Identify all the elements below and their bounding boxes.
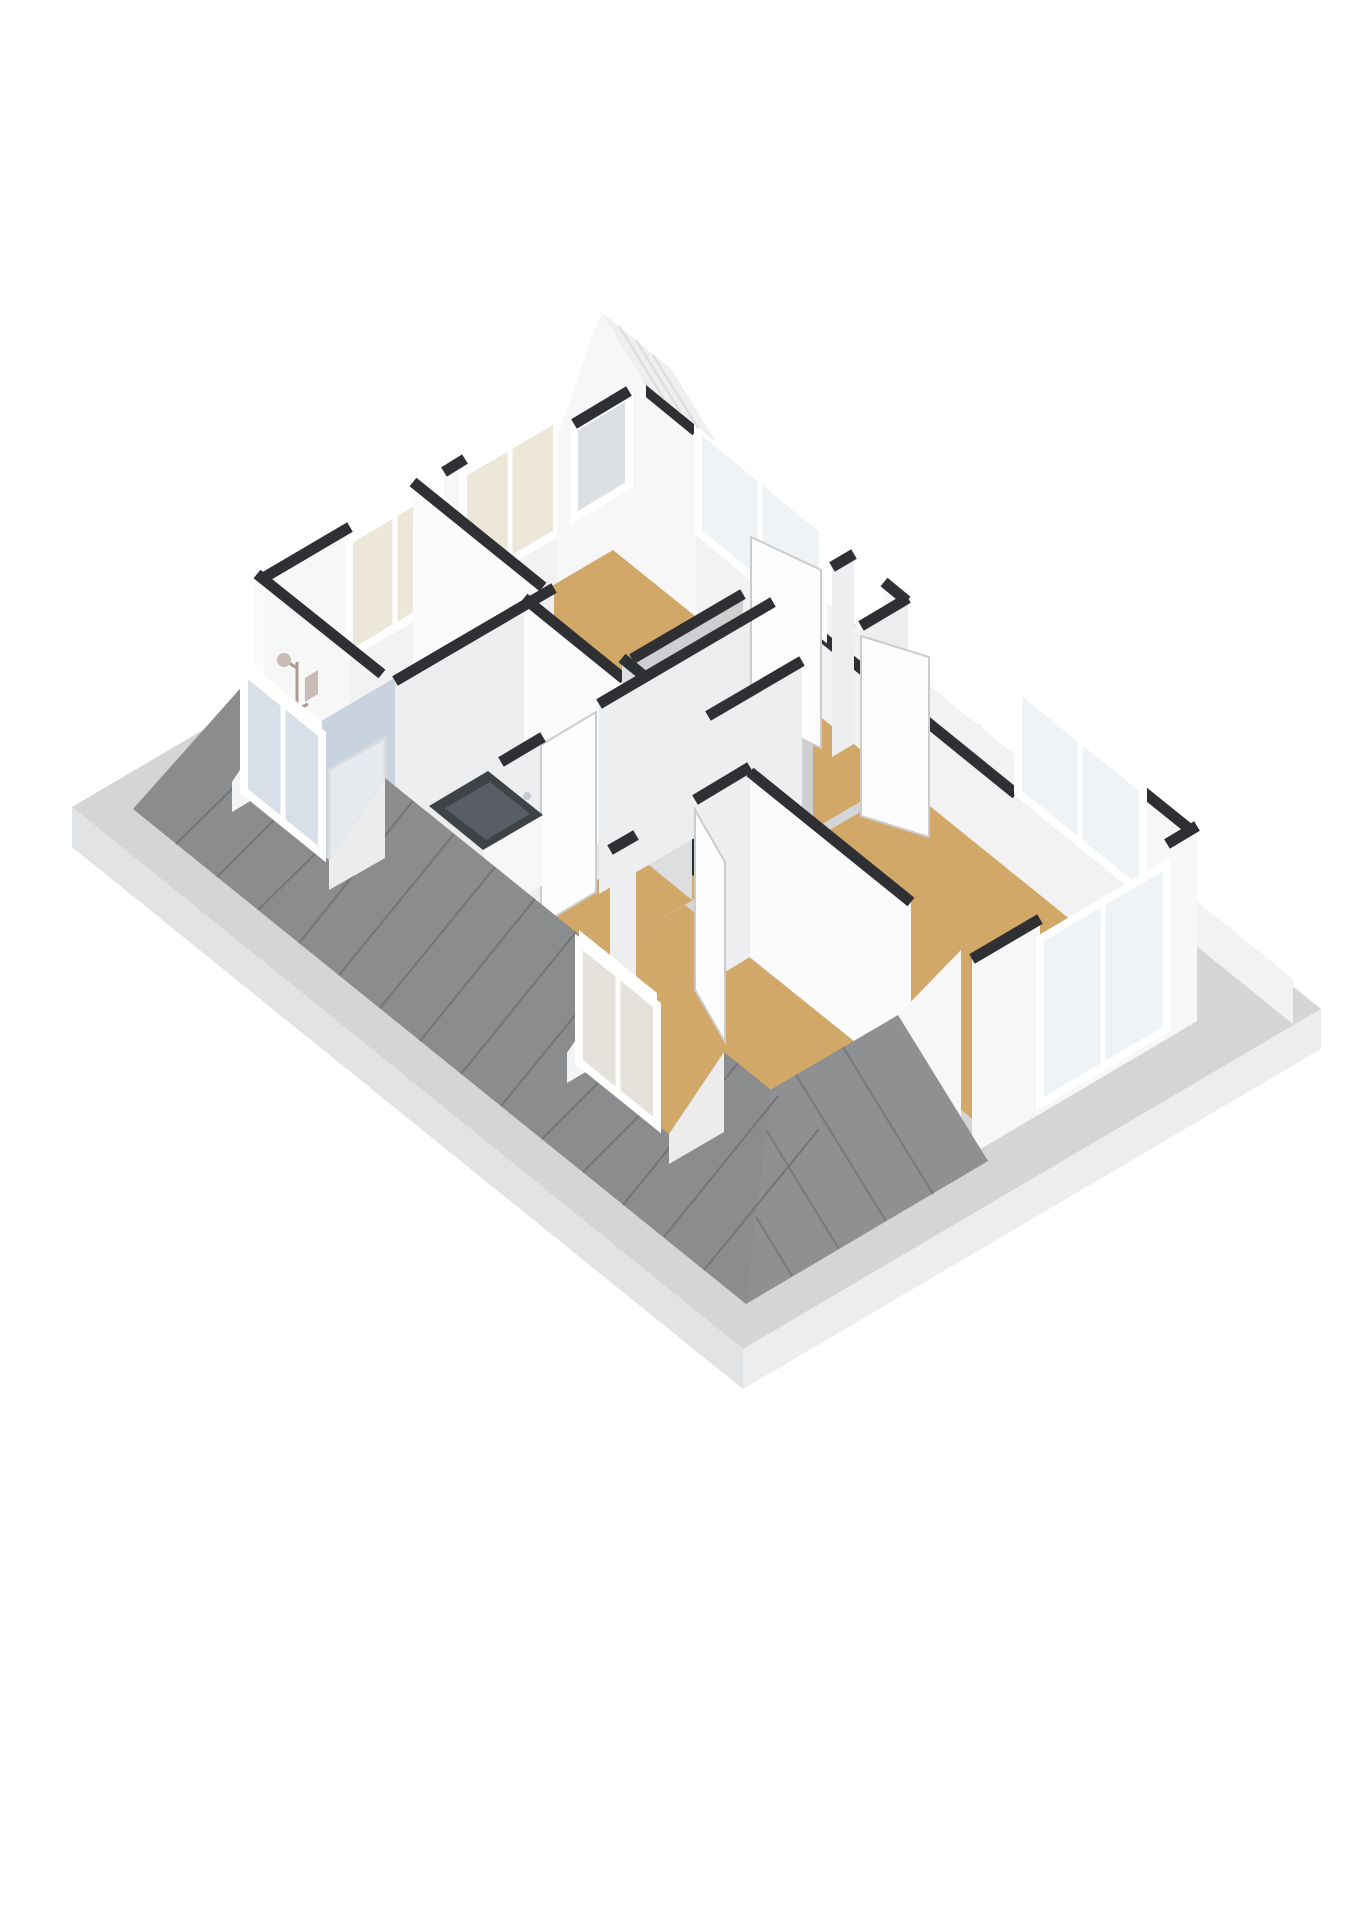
shower-head [277,653,291,667]
floorplan-3d-canvas: { "title": "3D attic floorplan render", … [0,0,1358,1920]
floorplan-svg [0,0,1358,1920]
faucet [523,792,531,800]
bathroom-door [541,712,596,925]
se-wall-right [1167,826,1197,1039]
wall-segment [832,554,854,757]
bedroom-right-door [861,636,929,837]
